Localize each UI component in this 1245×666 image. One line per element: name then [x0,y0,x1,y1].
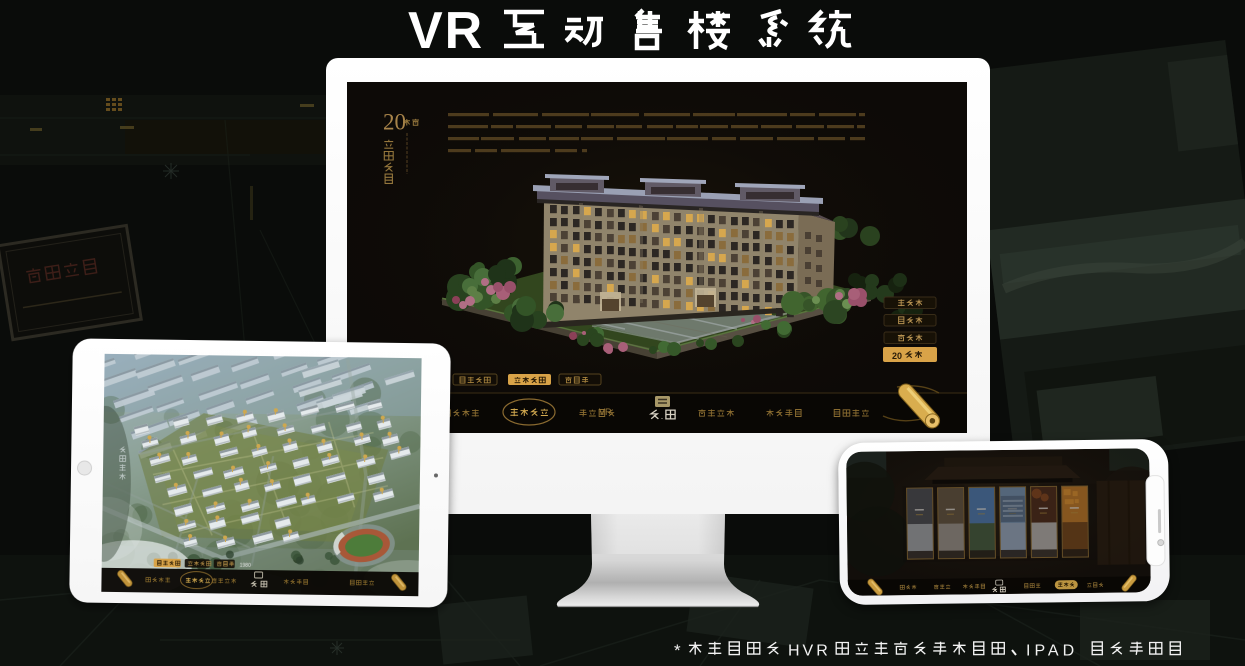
svg-text:1980: 1980 [240,563,251,569]
svg-text:.: . [661,412,663,421]
svg-text:20: 20 [383,110,406,135]
svg-text:VR: VR [599,407,612,417]
svg-text:*: * [674,641,681,660]
svg-text:20: 20 [892,351,902,361]
svg-text:IPAD: IPAD [1026,643,1078,660]
svg-text:VR: VR [408,2,484,60]
svg-text:HVR: HVR [788,643,831,660]
